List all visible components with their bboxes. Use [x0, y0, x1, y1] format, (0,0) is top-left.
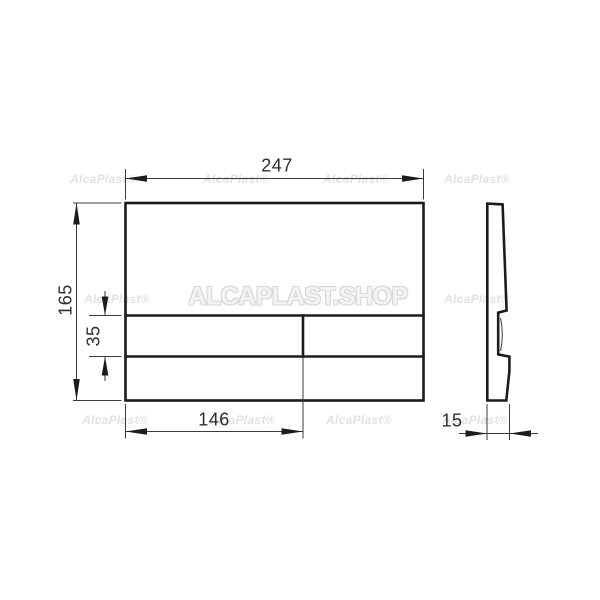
- dimension-labels: 247 165 35 146 15: [0, 0, 600, 600]
- plate-width-value: 247: [261, 156, 293, 177]
- plate-depth-value: 15: [441, 411, 462, 432]
- button-height-value: 35: [84, 325, 105, 346]
- button-width-value: 146: [198, 410, 230, 431]
- plate-height-value: 165: [56, 284, 77, 316]
- technical-drawing-page: AlcaPlast® AlcaPlast® AlcaPlast® AlcaPla…: [0, 0, 600, 600]
